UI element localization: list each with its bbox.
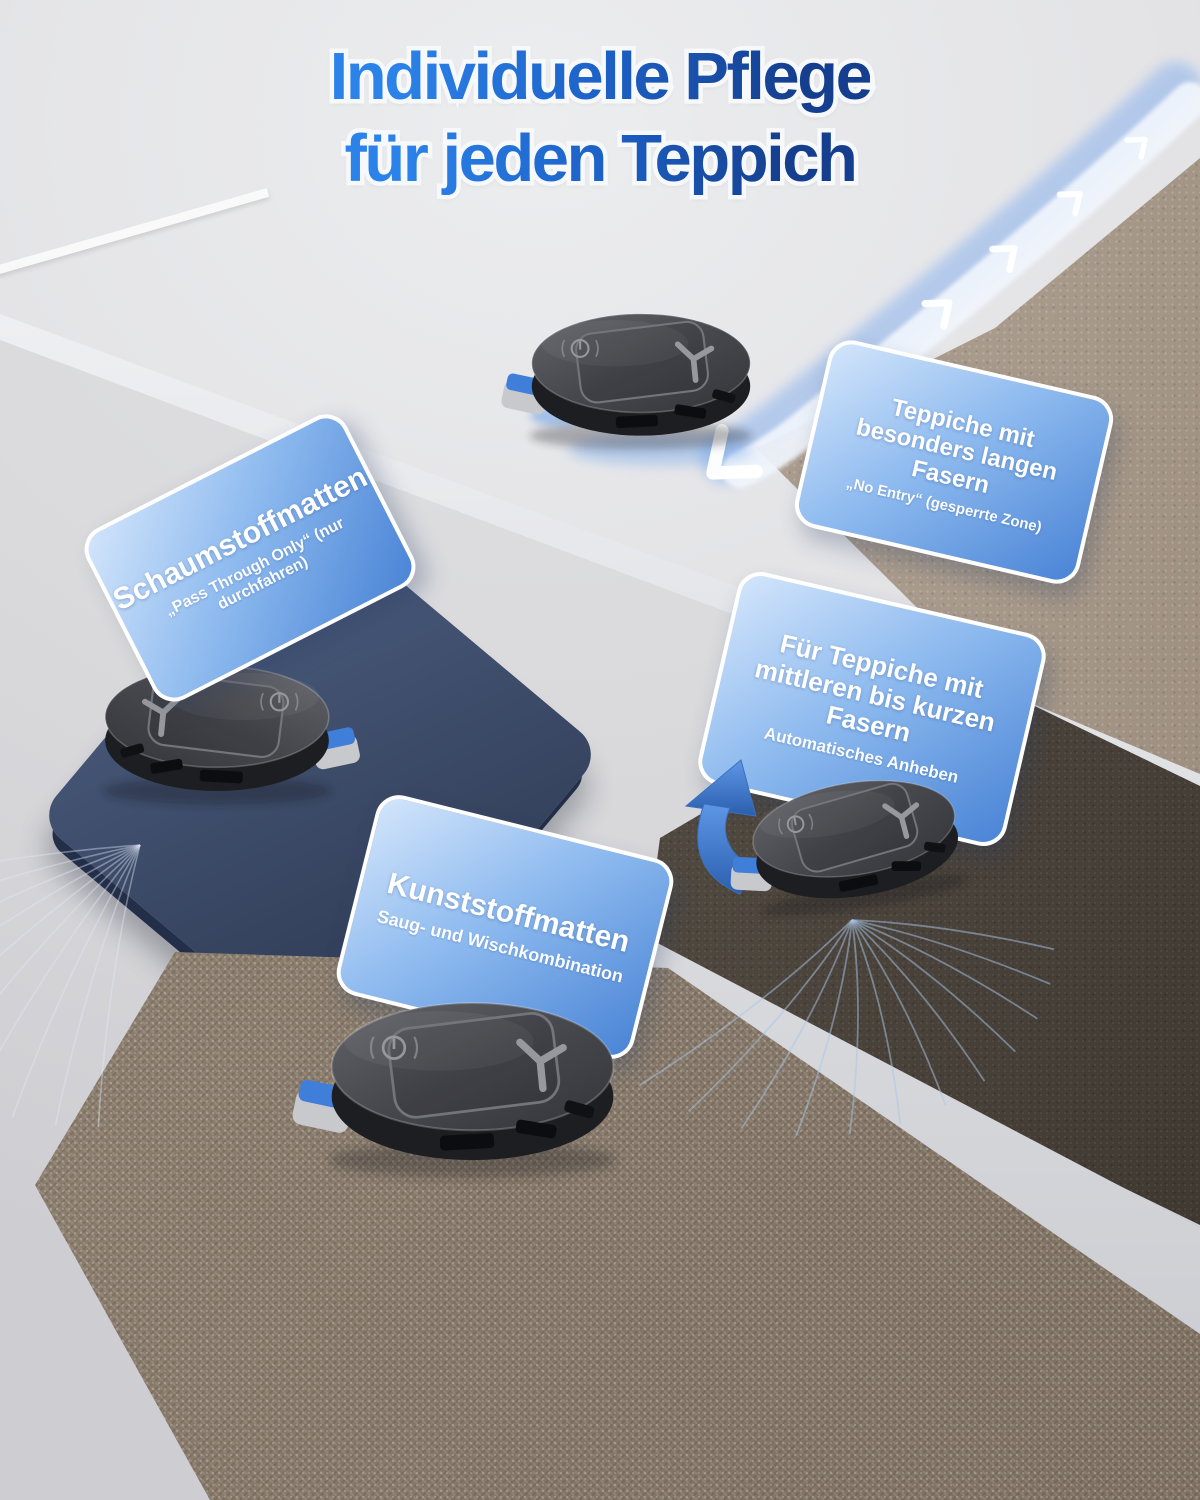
robot-vacuum-plastic-mat xyxy=(310,980,635,1183)
title-text: Individuelle Pflege xyxy=(330,39,871,114)
page-title: Individuelle Pflege Individuelle Pflege … xyxy=(0,36,1200,199)
robot-vacuum-no-entry xyxy=(515,296,767,454)
title-text: für jeden Teppich xyxy=(345,121,856,196)
title-line-2: für jeden Teppich für jeden Teppich xyxy=(0,118,1200,200)
product-infographic: Schaumstoffmatten „Pass Through Only“ (n… xyxy=(0,0,1200,1500)
title-line-1: Individuelle Pflege Individuelle Pflege xyxy=(0,36,1200,118)
